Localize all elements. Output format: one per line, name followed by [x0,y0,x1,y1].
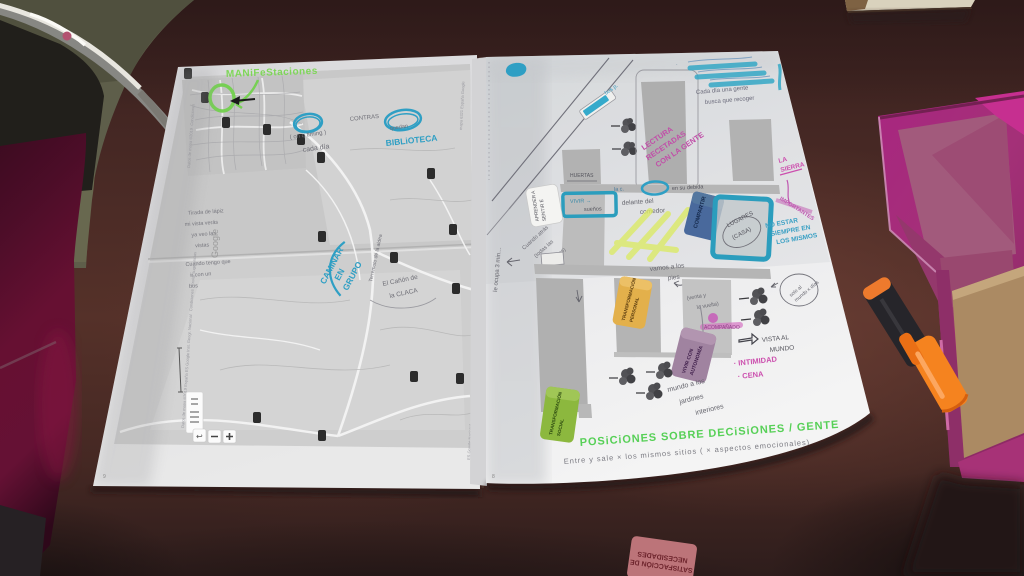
svg-text:sueños: sueños [584,206,602,213]
svg-text:HUERTAS: HUERTAS [570,173,594,179]
svg-text:vistas: vistas [195,242,210,249]
svg-text:9: 9 [103,474,106,480]
svg-text:VIVIR →: VIVIR → [570,198,592,205]
svg-text:8: 8 [492,474,495,480]
svg-text:Google: Google [210,229,220,258]
svg-text:↩: ↩ [196,432,203,441]
svg-text:ACOMPAÑADO: ACOMPAÑADO [704,324,740,331]
